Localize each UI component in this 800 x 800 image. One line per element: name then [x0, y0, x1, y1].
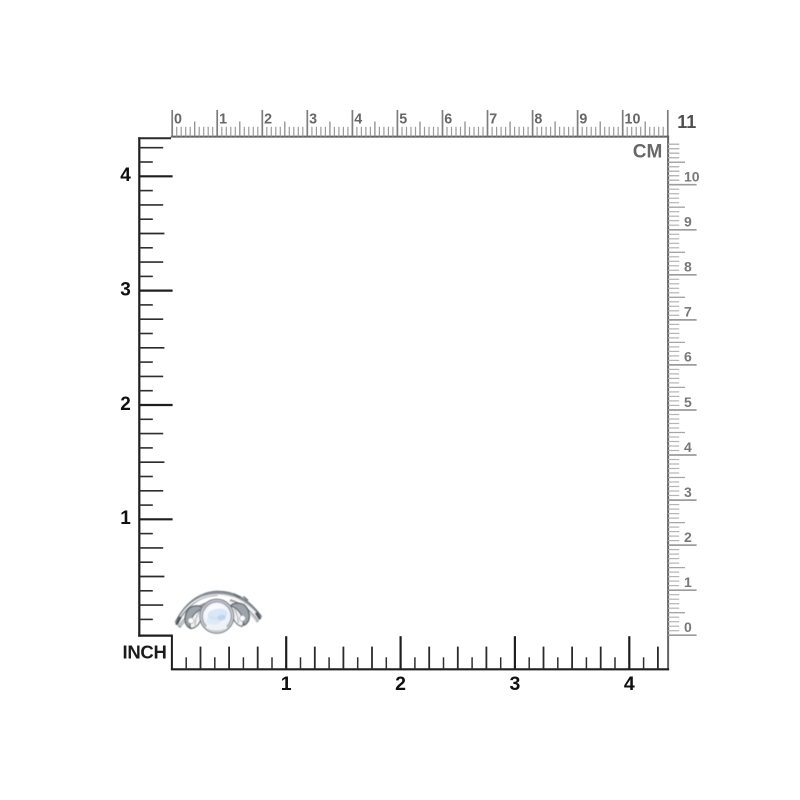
- svg-text:5: 5: [684, 394, 692, 410]
- svg-text:3: 3: [509, 673, 520, 695]
- svg-text:10: 10: [684, 169, 700, 185]
- svg-text:7: 7: [684, 304, 692, 320]
- svg-text:9: 9: [579, 112, 587, 128]
- svg-text:CM: CM: [633, 142, 663, 163]
- svg-text:1: 1: [219, 112, 227, 128]
- svg-text:1: 1: [684, 574, 692, 590]
- svg-text:4: 4: [354, 112, 362, 128]
- svg-text:2: 2: [120, 394, 131, 415]
- svg-text:5: 5: [399, 112, 407, 128]
- svg-text:1: 1: [120, 508, 131, 529]
- svg-text:9: 9: [684, 214, 692, 230]
- svg-text:2: 2: [395, 673, 406, 695]
- svg-text:3: 3: [120, 279, 131, 300]
- svg-text:11: 11: [677, 112, 696, 132]
- svg-text:3: 3: [684, 484, 692, 500]
- svg-text:4: 4: [624, 673, 635, 695]
- svg-text:1: 1: [281, 673, 292, 695]
- svg-text:8: 8: [534, 112, 542, 128]
- svg-text:2: 2: [264, 112, 272, 128]
- svg-text:3: 3: [309, 112, 317, 128]
- svg-text:7: 7: [489, 112, 497, 128]
- svg-text:4: 4: [684, 439, 692, 455]
- svg-text:0: 0: [684, 619, 692, 635]
- svg-text:10: 10: [625, 112, 641, 128]
- svg-text:INCH: INCH: [123, 642, 167, 663]
- svg-text:6: 6: [444, 112, 452, 128]
- svg-text:4: 4: [120, 165, 131, 186]
- svg-text:8: 8: [684, 259, 692, 275]
- svg-text:2: 2: [684, 529, 692, 545]
- svg-text:0: 0: [174, 112, 182, 128]
- svg-text:6: 6: [684, 349, 692, 365]
